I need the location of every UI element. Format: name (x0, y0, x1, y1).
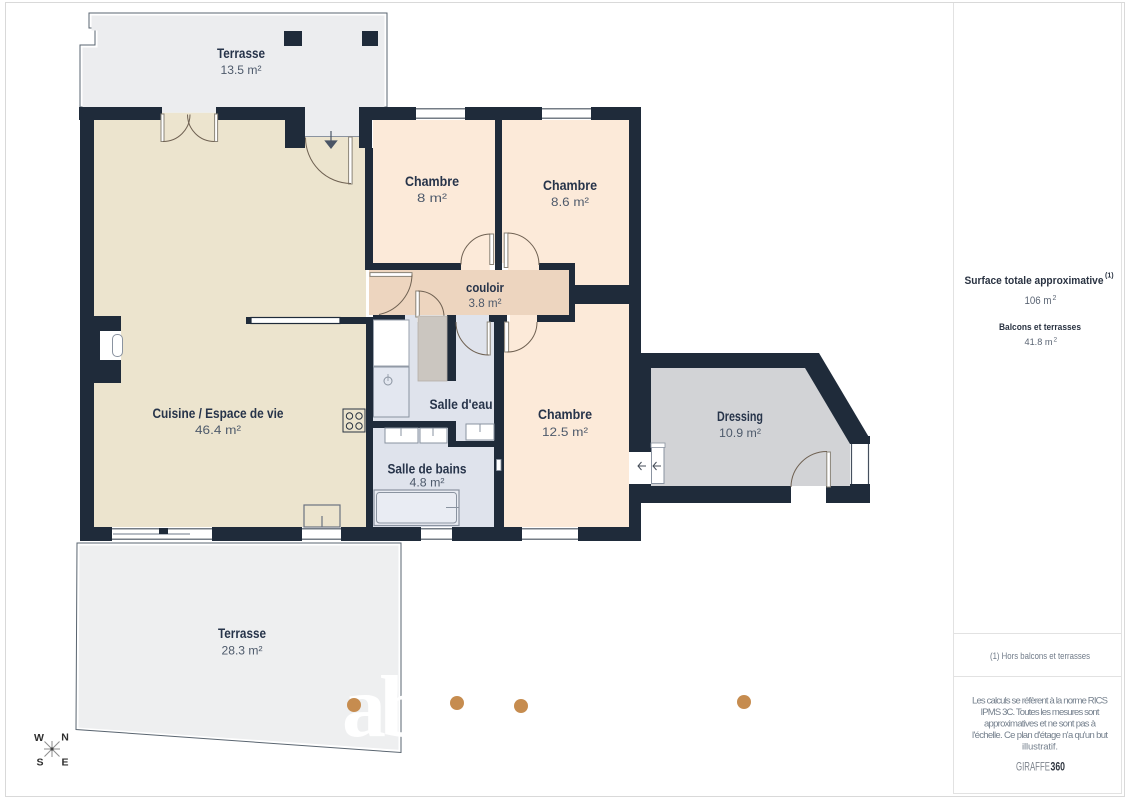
svg-text:illustratif.: illustratif. (1022, 742, 1058, 753)
svg-text:l'échelle. Ce plan d'étage n'a: l'échelle. Ce plan d'étage n'a qu'un but (972, 730, 1108, 741)
svg-text:46.4 m²: 46.4 m² (195, 423, 241, 437)
svg-text:N: N (61, 732, 69, 744)
svg-text:Chambre: Chambre (543, 178, 597, 193)
svg-text:10.9 m²: 10.9 m² (719, 426, 761, 440)
svg-text:2: 2 (1054, 337, 1058, 344)
svg-text:Salle de bains: Salle de bains (388, 462, 467, 477)
svg-text:E: E (61, 757, 68, 769)
svg-text:Dressing: Dressing (717, 409, 763, 424)
svg-text:approximatives et ne sont pas: approximatives et ne sont pas à (984, 719, 1097, 730)
svg-text:8.6 m²: 8.6 m² (551, 195, 589, 209)
svg-text:12.5 m²: 12.5 m² (542, 425, 588, 439)
svg-text:41.8 m: 41.8 m (1025, 337, 1053, 348)
svg-text:Chambre: Chambre (538, 407, 592, 422)
svg-text:Terrasse: Terrasse (218, 626, 266, 641)
svg-text:Cuisine / Espace de vie: Cuisine / Espace de vie (153, 406, 284, 421)
svg-text:couloir: couloir (466, 280, 504, 295)
svg-text:Balcons et terrasses: Balcons et terrasses (999, 322, 1081, 333)
svg-text:4.8 m²: 4.8 m² (410, 476, 445, 490)
svg-text:2: 2 (1053, 295, 1057, 302)
svg-text:28.3 m²: 28.3 m² (222, 644, 263, 658)
svg-text:(1): (1) (1105, 273, 1114, 280)
svg-text:Salle d'eau: Salle d'eau (430, 397, 493, 412)
svg-text:abriculteurs: abriculteurs (342, 659, 734, 756)
svg-text:IPMS 3C. Toutes les mesures so: IPMS 3C. Toutes les mesures sont (981, 707, 1100, 718)
svg-text:Chambre: Chambre (405, 174, 459, 189)
svg-text:(1) Hors balcons et terrasses: (1) Hors balcons et terrasses (990, 651, 1090, 662)
svg-text:3.8 m²: 3.8 m² (469, 296, 502, 310)
svg-text:GIRAFFE: GIRAFFE (1016, 762, 1050, 774)
svg-text:Les calculs se réfèrent à la n: Les calculs se réfèrent à la norme RICS (972, 696, 1108, 707)
svg-text:S: S (36, 757, 43, 769)
svg-text:106 m: 106 m (1025, 295, 1052, 307)
svg-text:360: 360 (1051, 762, 1066, 774)
svg-text:Terrasse: Terrasse (217, 46, 265, 61)
svg-text:13.5 m²: 13.5 m² (221, 63, 262, 77)
svg-text:Surface totale approximative: Surface totale approximative (965, 275, 1104, 287)
svg-text:8 m²: 8 m² (417, 191, 447, 205)
svg-text:W: W (34, 732, 44, 744)
